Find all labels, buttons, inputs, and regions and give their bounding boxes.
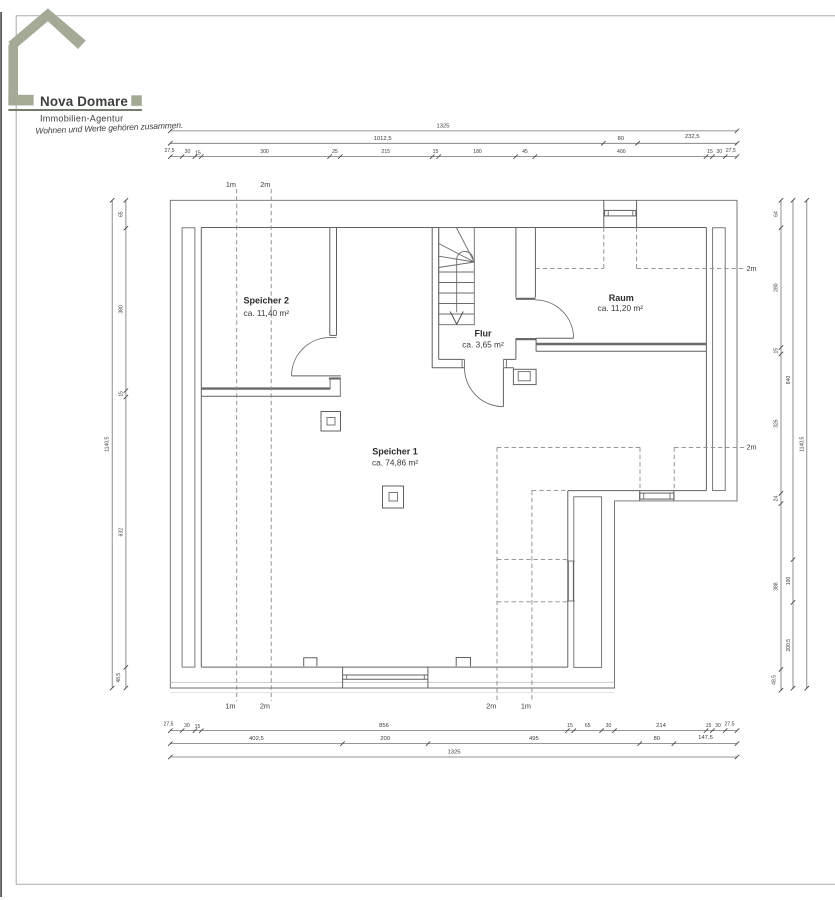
svg-text:48,5: 48,5 <box>116 673 122 683</box>
svg-text:27,5: 27,5 <box>164 721 174 727</box>
svg-text:232,5: 232,5 <box>685 134 700 140</box>
svg-text:2m: 2m <box>260 180 270 189</box>
svg-text:Flur: Flur <box>475 328 492 338</box>
svg-text:30: 30 <box>715 723 721 729</box>
svg-text:ca. 3,65 m²: ca. 3,65 m² <box>462 340 504 350</box>
svg-text:2m: 2m <box>747 443 757 452</box>
svg-text:15: 15 <box>707 149 713 155</box>
svg-text:64: 64 <box>774 211 780 217</box>
svg-text:1m: 1m <box>225 701 235 710</box>
svg-text:180: 180 <box>473 149 482 155</box>
svg-text:147,5: 147,5 <box>698 735 713 741</box>
svg-text:65: 65 <box>585 723 591 729</box>
svg-text:Speicher 2: Speicher 2 <box>244 296 290 306</box>
svg-text:15: 15 <box>195 151 201 157</box>
svg-text:Raum: Raum <box>609 293 634 303</box>
svg-text:300: 300 <box>260 149 269 155</box>
svg-text:1m: 1m <box>521 701 531 710</box>
svg-text:15: 15 <box>195 724 201 730</box>
svg-text:30: 30 <box>184 723 190 729</box>
svg-text:100: 100 <box>786 577 792 586</box>
svg-text:1140,5: 1140,5 <box>105 436 111 451</box>
svg-text:388: 388 <box>774 582 780 591</box>
svg-text:2m: 2m <box>260 701 270 710</box>
svg-text:1140,5: 1140,5 <box>800 436 806 451</box>
svg-text:15: 15 <box>118 391 124 397</box>
svg-text:200: 200 <box>380 736 391 742</box>
svg-text:326: 326 <box>774 419 780 428</box>
svg-text:30: 30 <box>716 149 722 155</box>
svg-text:215: 215 <box>382 149 391 155</box>
svg-text:27,5: 27,5 <box>725 721 735 727</box>
svg-text:1325: 1325 <box>436 123 450 129</box>
svg-text:25: 25 <box>332 149 338 155</box>
svg-text:632: 632 <box>118 528 124 537</box>
svg-text:ca. 11,40 m²: ca. 11,40 m² <box>244 308 290 318</box>
svg-text:15: 15 <box>706 723 712 729</box>
svg-text:840: 840 <box>786 376 792 385</box>
svg-text:402,5: 402,5 <box>249 736 264 742</box>
svg-text:Speicher 1: Speicher 1 <box>372 446 418 456</box>
svg-text:45: 45 <box>522 149 528 155</box>
svg-text:495: 495 <box>529 736 540 742</box>
svg-text:380: 380 <box>118 305 124 314</box>
svg-text:280: 280 <box>774 283 780 292</box>
svg-text:80: 80 <box>618 136 625 142</box>
svg-text:27,5: 27,5 <box>726 148 736 154</box>
svg-text:ca. 11,20 m²: ca. 11,20 m² <box>598 303 644 313</box>
svg-text:ca. 74,86 m²: ca. 74,86 m² <box>372 457 418 467</box>
svg-text:24: 24 <box>774 496 780 502</box>
svg-text:400: 400 <box>617 149 626 155</box>
svg-text:214: 214 <box>656 723 667 729</box>
svg-text:48,5: 48,5 <box>772 675 778 685</box>
svg-text:856: 856 <box>379 723 390 729</box>
svg-text:2m: 2m <box>747 264 757 273</box>
svg-text:1325: 1325 <box>447 750 461 756</box>
svg-text:30: 30 <box>185 149 191 155</box>
svg-text:15: 15 <box>774 348 780 354</box>
svg-text:2m: 2m <box>486 701 496 710</box>
svg-text:1012,5: 1012,5 <box>374 136 393 142</box>
svg-text:65: 65 <box>118 211 124 217</box>
svg-text:15: 15 <box>567 723 573 729</box>
svg-text:200,5: 200,5 <box>786 639 792 652</box>
svg-text:80: 80 <box>654 736 661 742</box>
svg-text:15: 15 <box>433 149 439 155</box>
svg-text:30: 30 <box>606 723 612 729</box>
svg-text:1m: 1m <box>226 180 236 189</box>
svg-text:Nova Domare: Nova Domare <box>40 94 128 109</box>
svg-text:27,5: 27,5 <box>165 148 175 154</box>
